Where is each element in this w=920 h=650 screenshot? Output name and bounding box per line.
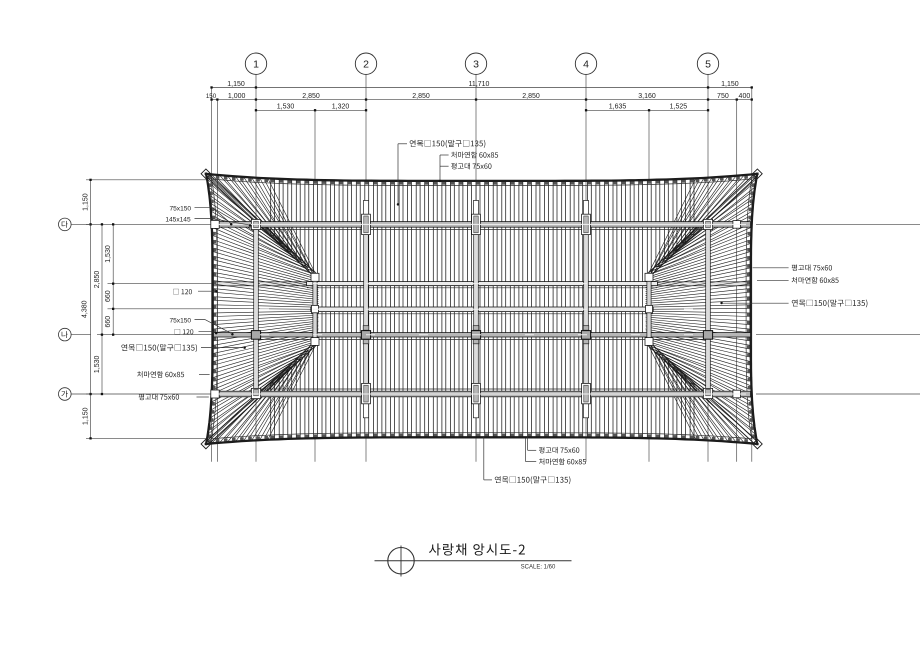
svg-text:1,000: 1,000	[228, 93, 246, 100]
svg-text:1,530: 1,530	[94, 355, 101, 373]
svg-text:400: 400	[739, 93, 751, 100]
svg-text:750: 750	[717, 93, 729, 100]
svg-text:SCALE: 1/60: SCALE: 1/60	[521, 564, 556, 570]
svg-text:1,525: 1,525	[670, 104, 688, 111]
svg-text:75x150: 75x150	[169, 205, 191, 212]
svg-text:5: 5	[705, 59, 711, 71]
svg-text:660: 660	[105, 316, 112, 328]
svg-text:1,320: 1,320	[332, 104, 350, 111]
svg-text:1: 1	[253, 59, 259, 71]
svg-text:1,150: 1,150	[721, 81, 739, 88]
svg-text:11,710: 11,710	[469, 81, 490, 88]
svg-text:2,850: 2,850	[94, 271, 101, 289]
svg-text:1,530: 1,530	[277, 104, 295, 111]
svg-text:1,150: 1,150	[227, 81, 245, 88]
svg-text:4,380: 4,380	[82, 300, 89, 318]
svg-text:4: 4	[583, 59, 589, 71]
svg-text:2: 2	[363, 59, 369, 71]
svg-text:75x150: 75x150	[169, 318, 191, 325]
svg-text:1,150: 1,150	[82, 193, 89, 211]
svg-text:2,850: 2,850	[522, 93, 540, 100]
svg-text:145x145: 145x145	[165, 216, 191, 223]
svg-text:3: 3	[473, 59, 479, 71]
svg-text:1,530: 1,530	[105, 245, 112, 263]
svg-text:2,850: 2,850	[302, 93, 320, 100]
svg-text:660: 660	[105, 290, 112, 302]
svg-text:3,160: 3,160	[638, 93, 656, 100]
svg-text:1,635: 1,635	[609, 104, 627, 111]
svg-text:2,850: 2,850	[412, 93, 430, 100]
svg-text:1,150: 1,150	[82, 407, 89, 425]
svg-text:150: 150	[206, 93, 217, 100]
